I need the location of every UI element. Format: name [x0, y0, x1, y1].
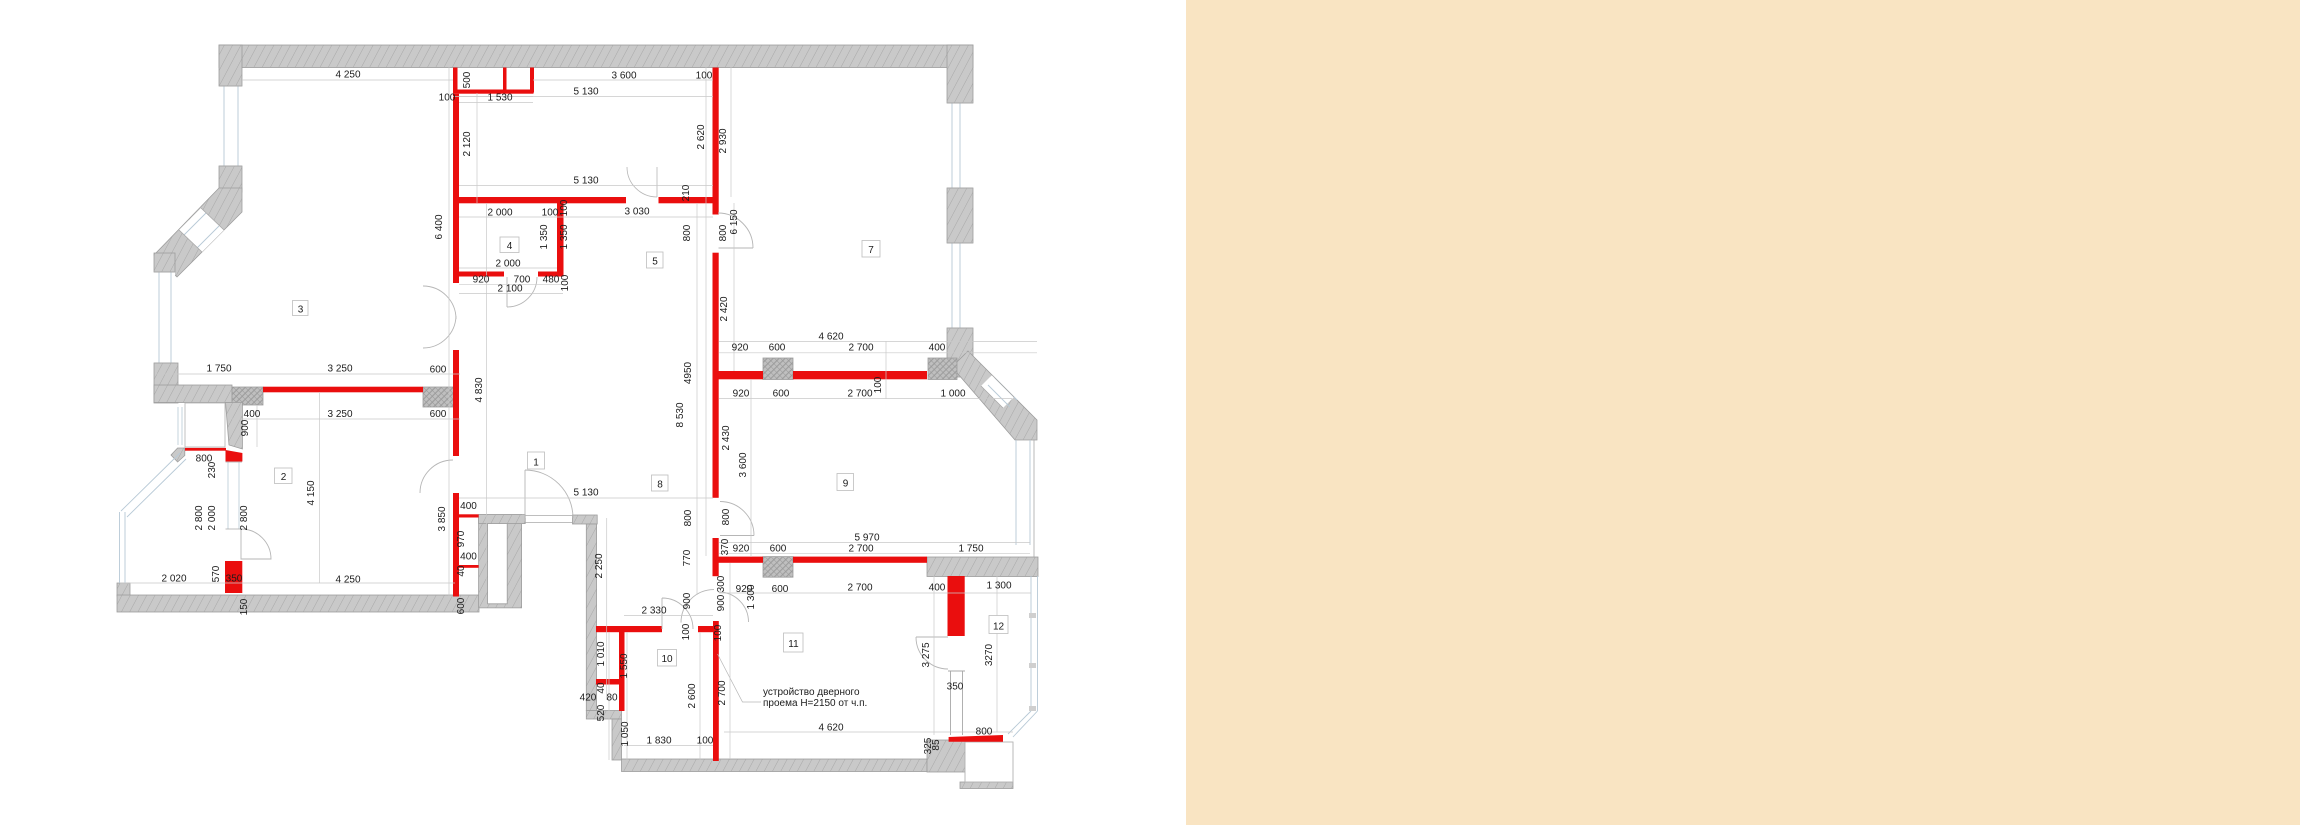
svg-text:1 300: 1 300 [986, 581, 1011, 592]
svg-text:570: 570 [211, 565, 222, 582]
svg-text:2 100: 2 100 [497, 284, 522, 295]
svg-text:100: 100 [697, 736, 714, 747]
svg-text:920: 920 [733, 544, 750, 555]
svg-text:800: 800 [718, 224, 729, 241]
svg-text:800: 800 [683, 509, 694, 526]
svg-text:900: 900 [716, 594, 727, 611]
svg-text:11: 11 [788, 639, 799, 650]
svg-text:150: 150 [239, 598, 250, 615]
svg-text:400: 400 [929, 343, 946, 354]
svg-text:3270: 3270 [984, 643, 995, 666]
svg-text:2 700: 2 700 [848, 544, 873, 555]
svg-text:4 620: 4 620 [818, 723, 843, 734]
svg-text:12: 12 [993, 622, 1005, 633]
svg-text:600: 600 [430, 409, 447, 420]
svg-text:100: 100 [696, 71, 713, 82]
svg-text:520: 520 [596, 704, 607, 721]
svg-text:600: 600 [456, 597, 467, 614]
svg-text:3: 3 [298, 305, 304, 316]
svg-text:2 700: 2 700 [848, 343, 873, 354]
svg-text:5 130: 5 130 [573, 87, 598, 98]
svg-text:420: 420 [580, 693, 597, 704]
svg-text:100: 100 [681, 623, 692, 640]
svg-text:8 530: 8 530 [675, 402, 686, 427]
svg-text:800: 800 [721, 508, 732, 525]
svg-text:2 700: 2 700 [717, 680, 728, 705]
svg-text:1 300: 1 300 [746, 584, 757, 609]
svg-text:3 850: 3 850 [437, 506, 448, 531]
svg-text:2 700: 2 700 [847, 583, 872, 594]
svg-text:1 530: 1 530 [487, 93, 512, 104]
svg-text:2 800: 2 800 [239, 505, 250, 530]
svg-text:устройство дверного: устройство дверного [763, 687, 860, 698]
svg-text:900: 900 [682, 592, 693, 609]
svg-text:1 750: 1 750 [206, 364, 231, 375]
svg-text:8: 8 [657, 480, 663, 491]
svg-text:920: 920 [732, 343, 749, 354]
svg-text:80: 80 [606, 693, 618, 704]
svg-text:600: 600 [430, 365, 447, 376]
svg-text:1 350: 1 350 [559, 224, 570, 249]
svg-text:920: 920 [473, 275, 490, 286]
svg-text:2 250: 2 250 [594, 553, 605, 578]
svg-text:1 350: 1 350 [539, 224, 550, 249]
svg-text:2 700: 2 700 [847, 389, 872, 400]
svg-text:5 130: 5 130 [573, 176, 598, 187]
svg-text:1 550: 1 550 [619, 653, 630, 678]
svg-text:350: 350 [947, 682, 964, 693]
svg-text:600: 600 [772, 584, 789, 595]
svg-text:400: 400 [929, 583, 946, 594]
svg-text:400: 400 [460, 501, 477, 512]
svg-text:проема Н=2150 от ч.п.: проема Н=2150 от ч.п. [763, 698, 867, 709]
svg-text:920: 920 [733, 389, 750, 400]
svg-text:500: 500 [462, 71, 473, 88]
svg-text:4 250: 4 250 [335, 70, 360, 81]
svg-text:970: 970 [456, 530, 467, 547]
svg-text:350: 350 [226, 574, 243, 585]
svg-text:800: 800 [976, 727, 993, 738]
svg-text:2 020: 2 020 [161, 574, 186, 585]
svg-text:1 050: 1 050 [620, 721, 631, 746]
svg-text:2 430: 2 430 [721, 425, 732, 450]
svg-text:100: 100 [439, 93, 456, 104]
svg-text:2 000: 2 000 [487, 208, 512, 219]
svg-text:1: 1 [533, 458, 539, 469]
svg-text:2 600: 2 600 [687, 683, 698, 708]
svg-text:40: 40 [596, 682, 607, 694]
svg-text:100: 100 [713, 624, 724, 641]
svg-text:4: 4 [507, 241, 513, 252]
svg-text:5 130: 5 130 [573, 488, 598, 499]
svg-text:1 830: 1 830 [646, 736, 671, 747]
svg-text:40: 40 [456, 565, 467, 577]
svg-text:2 620: 2 620 [696, 124, 707, 149]
svg-text:2 930: 2 930 [718, 128, 729, 153]
svg-text:4 830: 4 830 [474, 377, 485, 402]
svg-text:2 800: 2 800 [194, 505, 205, 530]
svg-text:100: 100 [560, 274, 571, 291]
svg-text:100: 100 [559, 199, 570, 216]
svg-text:1 750: 1 750 [958, 544, 983, 555]
svg-text:10: 10 [661, 654, 673, 665]
svg-text:3 275: 3 275 [921, 642, 932, 667]
svg-text:800: 800 [682, 224, 693, 241]
svg-text:2 120: 2 120 [462, 131, 473, 156]
svg-text:2 000: 2 000 [495, 259, 520, 270]
svg-text:900: 900 [240, 419, 251, 436]
svg-text:3 250: 3 250 [327, 364, 352, 375]
svg-text:9: 9 [843, 479, 849, 490]
svg-text:4950: 4950 [683, 361, 694, 384]
svg-text:370: 370 [720, 538, 731, 555]
svg-text:100: 100 [873, 376, 884, 393]
svg-text:2 000: 2 000 [207, 505, 218, 530]
svg-text:6 400: 6 400 [434, 214, 445, 239]
svg-text:6 150: 6 150 [729, 209, 740, 234]
svg-text:2 420: 2 420 [719, 296, 730, 321]
svg-text:230: 230 [207, 461, 218, 478]
svg-text:400: 400 [244, 409, 261, 420]
svg-text:600: 600 [770, 544, 787, 555]
svg-text:2 330: 2 330 [641, 606, 666, 617]
svg-text:300: 300 [716, 575, 727, 592]
svg-text:3 030: 3 030 [624, 207, 649, 218]
svg-text:4 250: 4 250 [335, 575, 360, 586]
svg-text:600: 600 [769, 343, 786, 354]
svg-text:5 970: 5 970 [854, 533, 879, 544]
svg-text:400: 400 [460, 552, 477, 563]
svg-text:5: 5 [652, 257, 658, 268]
svg-text:2: 2 [281, 472, 287, 483]
svg-text:3 250: 3 250 [327, 409, 352, 420]
svg-text:100: 100 [542, 208, 559, 219]
svg-text:770: 770 [682, 549, 693, 566]
svg-text:7: 7 [868, 245, 874, 256]
svg-text:85: 85 [931, 739, 942, 751]
svg-text:4 150: 4 150 [306, 480, 317, 505]
svg-text:210: 210 [681, 184, 692, 201]
svg-text:600: 600 [773, 389, 790, 400]
svg-text:480: 480 [543, 275, 560, 286]
svg-text:1 000: 1 000 [940, 389, 965, 400]
svg-text:4 620: 4 620 [818, 332, 843, 343]
svg-text:3 600: 3 600 [738, 452, 749, 477]
svg-text:1 010: 1 010 [596, 641, 607, 666]
svg-text:3 600: 3 600 [611, 71, 636, 82]
